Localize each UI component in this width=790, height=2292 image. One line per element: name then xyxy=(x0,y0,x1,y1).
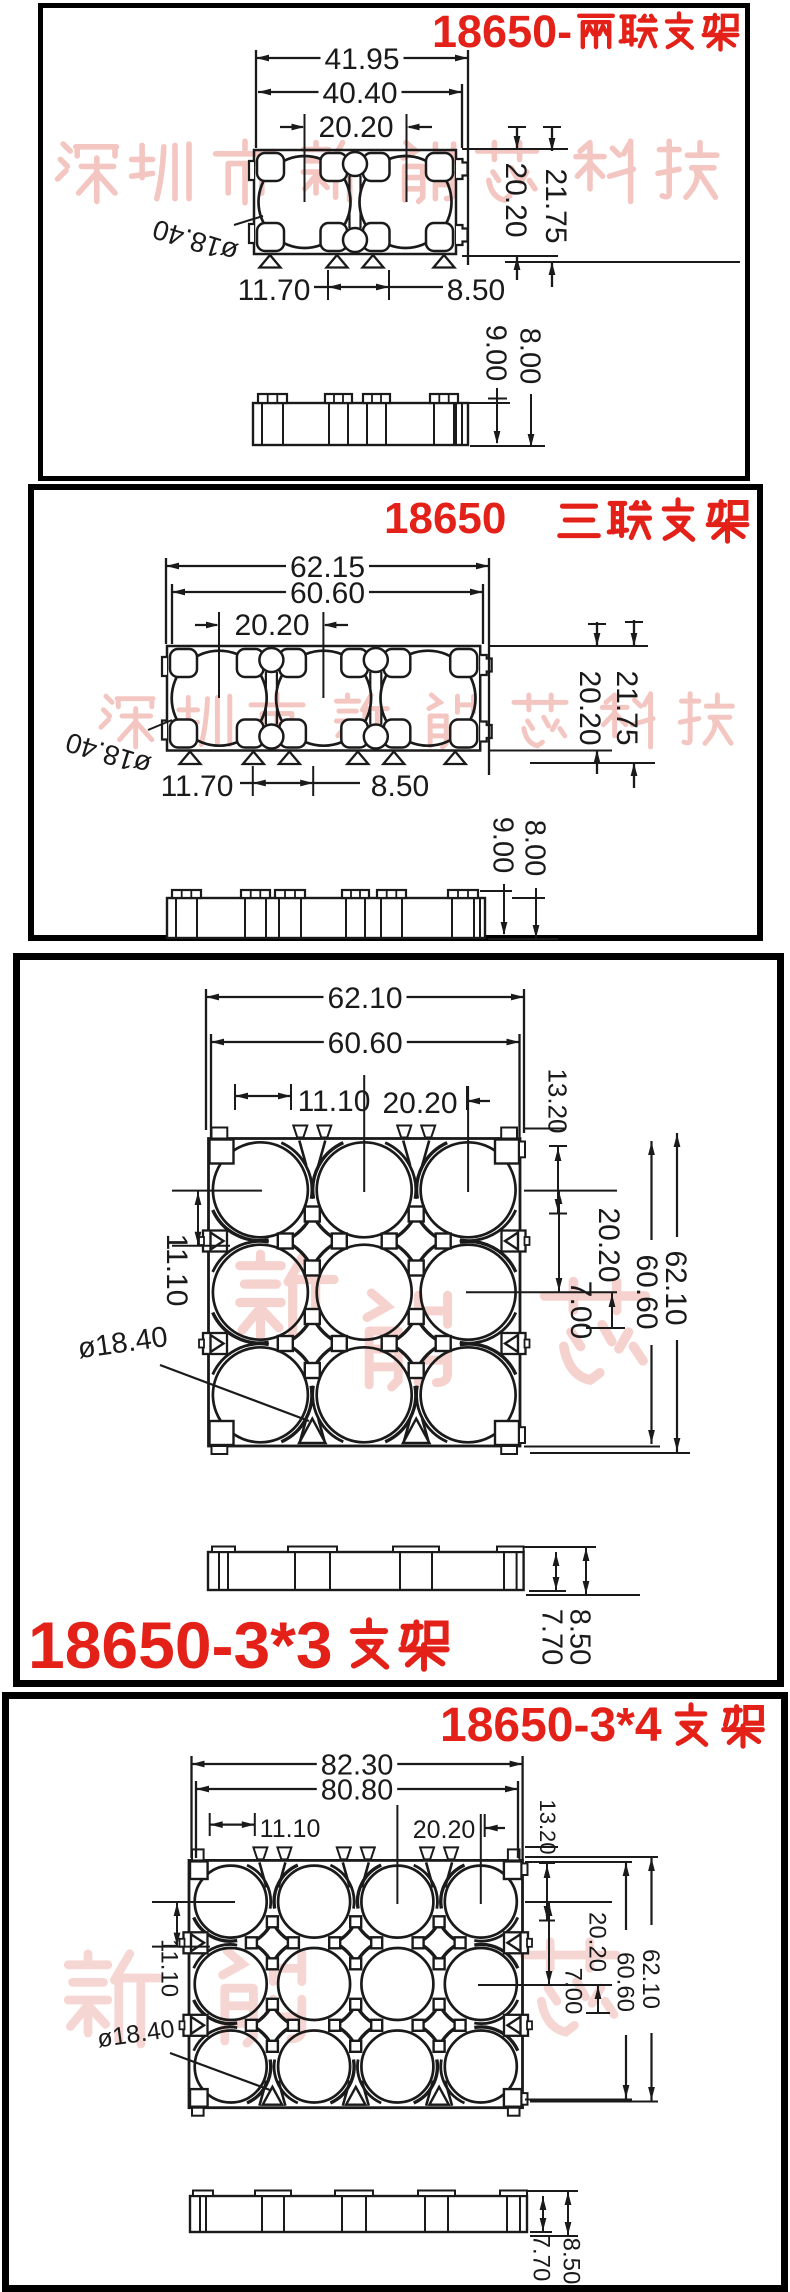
svg-text:11.10: 11.10 xyxy=(160,1234,193,1307)
svg-text:8.50: 8.50 xyxy=(447,274,505,307)
svg-text:20.20: 20.20 xyxy=(234,609,309,642)
svg-text:20.20: 20.20 xyxy=(318,111,393,144)
svg-text:18650-3*3: 18650-3*3 xyxy=(28,1608,333,1682)
svg-text:7.00: 7.00 xyxy=(559,1968,586,2015)
svg-text:7.70: 7.70 xyxy=(535,1609,567,1665)
svg-text:60.60: 60.60 xyxy=(328,1027,403,1060)
svg-text:11.70: 11.70 xyxy=(161,770,234,803)
svg-text:20.20: 20.20 xyxy=(413,1816,476,1844)
svg-text:18650-: 18650- xyxy=(432,6,572,57)
svg-text:9.00: 9.00 xyxy=(487,817,519,873)
svg-text:11.70: 11.70 xyxy=(238,274,311,307)
svg-text:8.00: 8.00 xyxy=(514,328,546,384)
svg-text:8.00: 8.00 xyxy=(519,820,551,876)
svg-text:21.75: 21.75 xyxy=(610,670,643,745)
svg-text:20.20: 20.20 xyxy=(583,1912,610,1972)
svg-text:9.00: 9.00 xyxy=(480,325,512,381)
svg-text:8.50: 8.50 xyxy=(557,2238,584,2285)
svg-text:20.20: 20.20 xyxy=(592,1207,625,1282)
svg-text:60.60: 60.60 xyxy=(290,577,365,610)
svg-text:62.10: 62.10 xyxy=(637,1949,664,2009)
svg-text:8.50: 8.50 xyxy=(371,770,429,803)
svg-text:11.10: 11.10 xyxy=(298,1085,371,1118)
svg-text:62.10: 62.10 xyxy=(659,1250,692,1325)
svg-text:60.60: 60.60 xyxy=(630,1254,663,1329)
svg-text:20.20: 20.20 xyxy=(382,1087,457,1120)
svg-text:80.80: 80.80 xyxy=(321,1774,394,1806)
svg-text:11.10: 11.10 xyxy=(260,1815,321,1843)
svg-text:62.10: 62.10 xyxy=(327,982,402,1015)
svg-text:40.40: 40.40 xyxy=(322,77,397,110)
svg-text:7.00: 7.00 xyxy=(564,1281,597,1339)
svg-text:20.20: 20.20 xyxy=(499,162,532,237)
svg-text:13.20: 13.20 xyxy=(543,1068,573,1133)
svg-text:18650: 18650 xyxy=(384,494,506,543)
svg-text:8.50: 8.50 xyxy=(563,1609,595,1665)
svg-text:18650-3*4: 18650-3*4 xyxy=(440,1699,662,1752)
svg-text:20.20: 20.20 xyxy=(573,670,606,745)
svg-text:11.10: 11.10 xyxy=(155,1939,182,1997)
svg-text:21.75: 21.75 xyxy=(539,168,572,243)
svg-text:41.95: 41.95 xyxy=(324,43,399,76)
svg-text:7.70: 7.70 xyxy=(527,2235,554,2282)
svg-text:60.60: 60.60 xyxy=(611,1952,638,2012)
